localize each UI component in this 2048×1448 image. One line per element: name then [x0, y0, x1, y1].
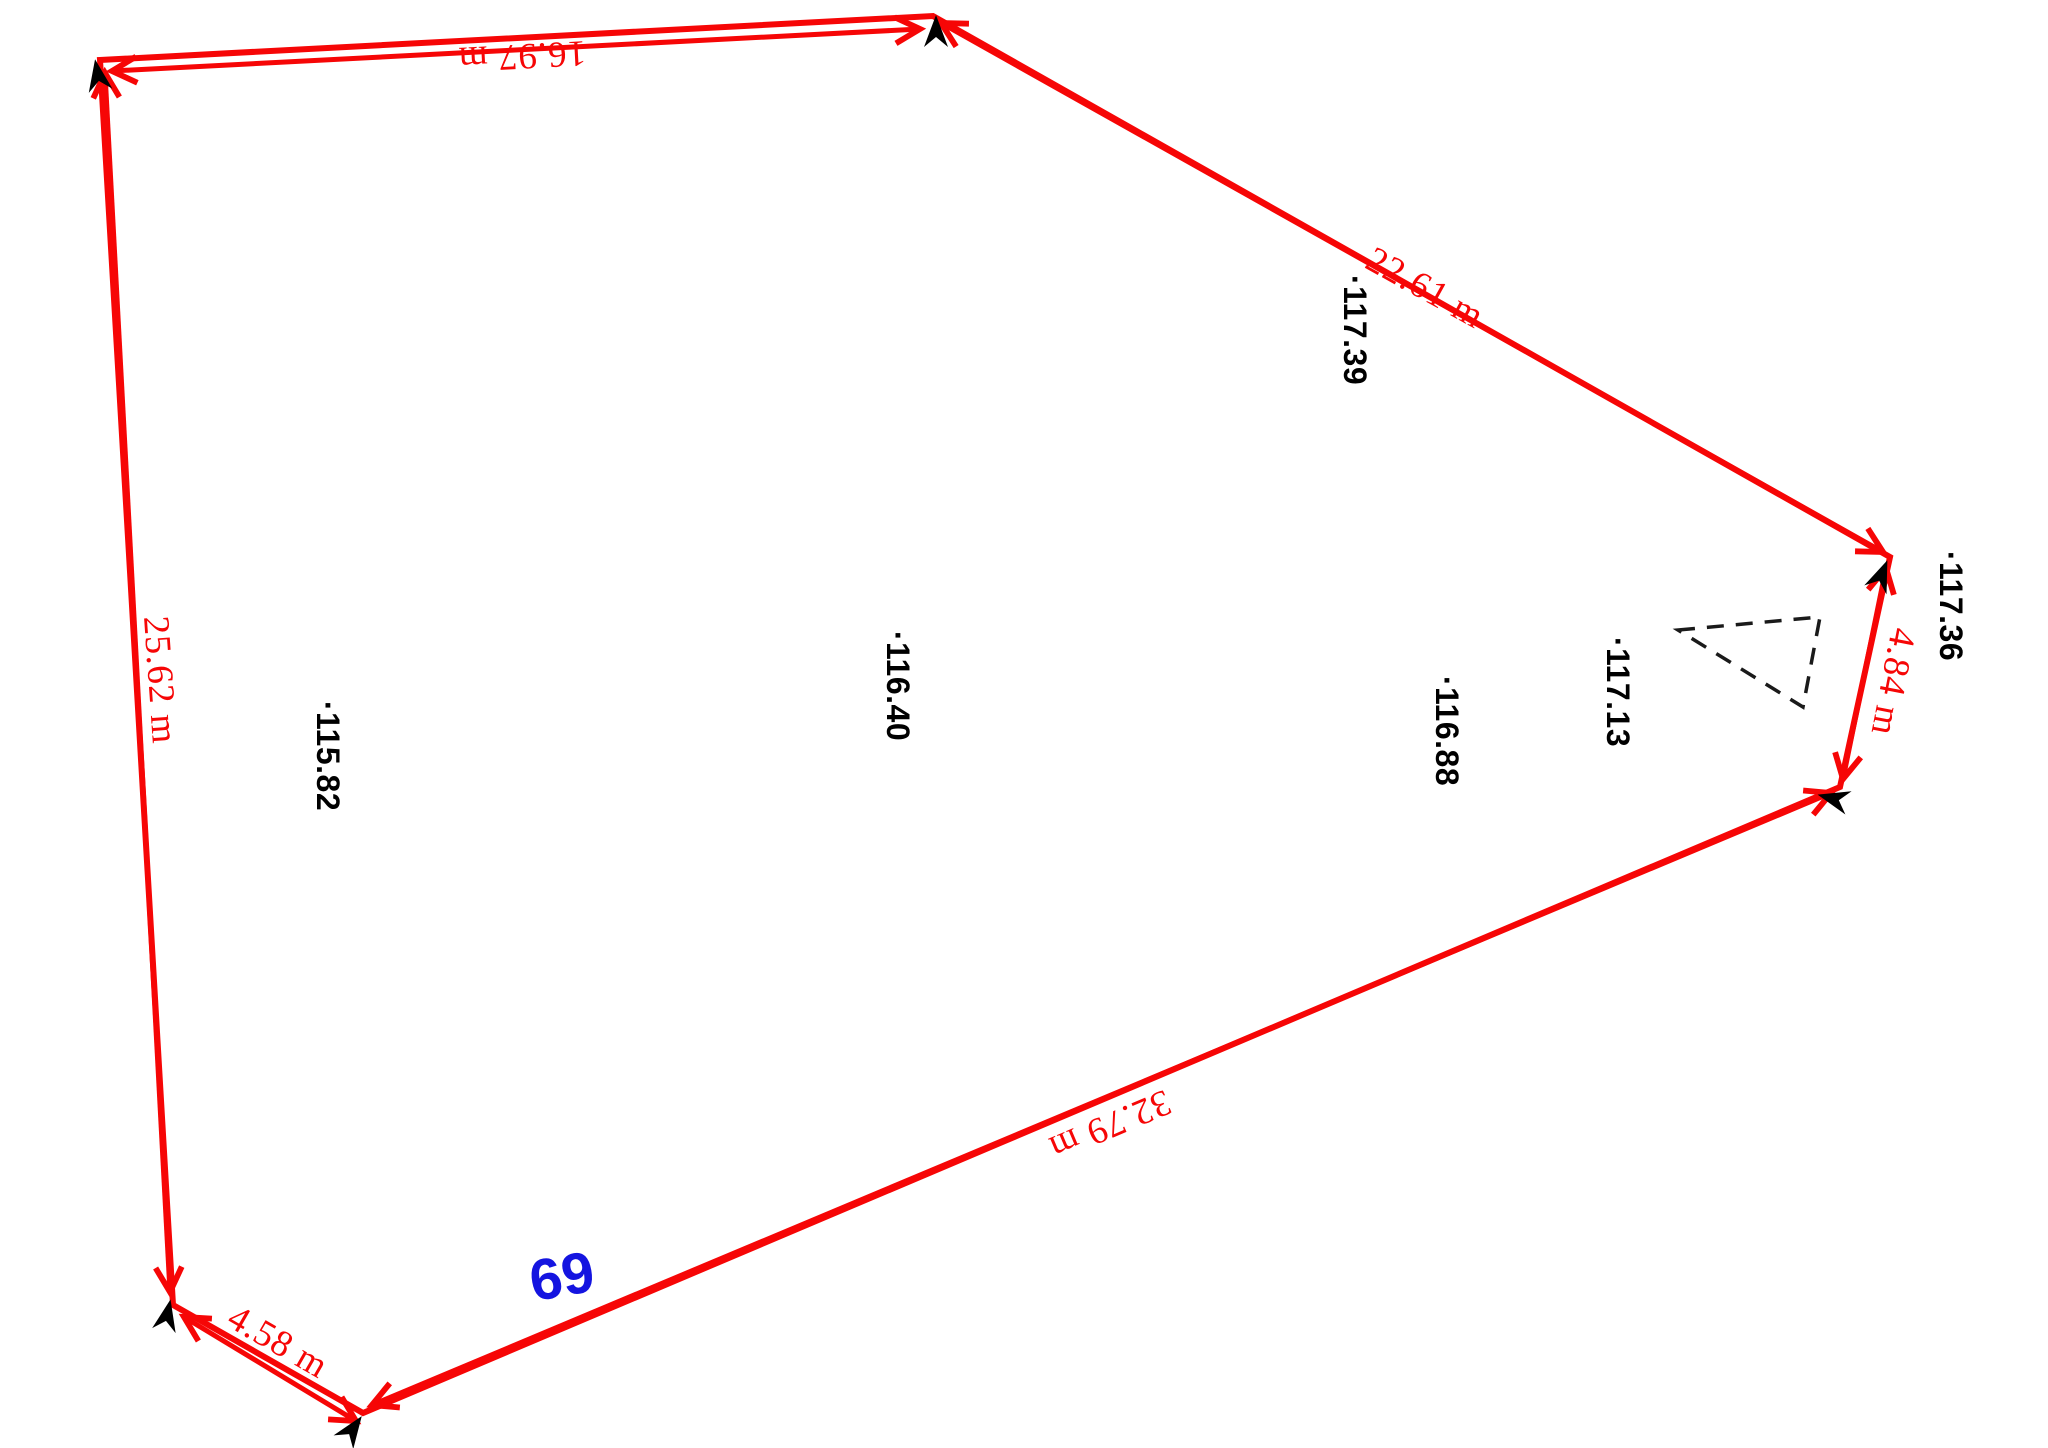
dimension-label-left: 25.62 m [137, 615, 183, 746]
elevation-label-117-13: ·117.13 [1602, 637, 1634, 747]
cadastral-parcel-sketch: 16.97 m 22.61 m 4.84 m 32.79 m 4.58 m 25… [0, 0, 2048, 1448]
elevation-label-116-88: ·116.88 [1431, 676, 1463, 786]
dashed-triangle-symbol [1678, 617, 1820, 707]
parcel-number-label: 69 [525, 1243, 599, 1311]
elevation-label-115-82: ·115.82 [312, 701, 344, 811]
elevation-label-117-39: ·117.39 [1339, 275, 1371, 385]
sketch-canvas [0, 0, 2048, 1448]
vertex-marker-bottom-left [152, 1297, 182, 1333]
dimension-line-lower [372, 793, 1831, 1405]
dimension-label-top: 16.97 m [457, 34, 587, 78]
elevation-label-116-40: ·116.40 [882, 631, 914, 741]
elevation-label-117-36: ·117.36 [1935, 551, 1967, 661]
